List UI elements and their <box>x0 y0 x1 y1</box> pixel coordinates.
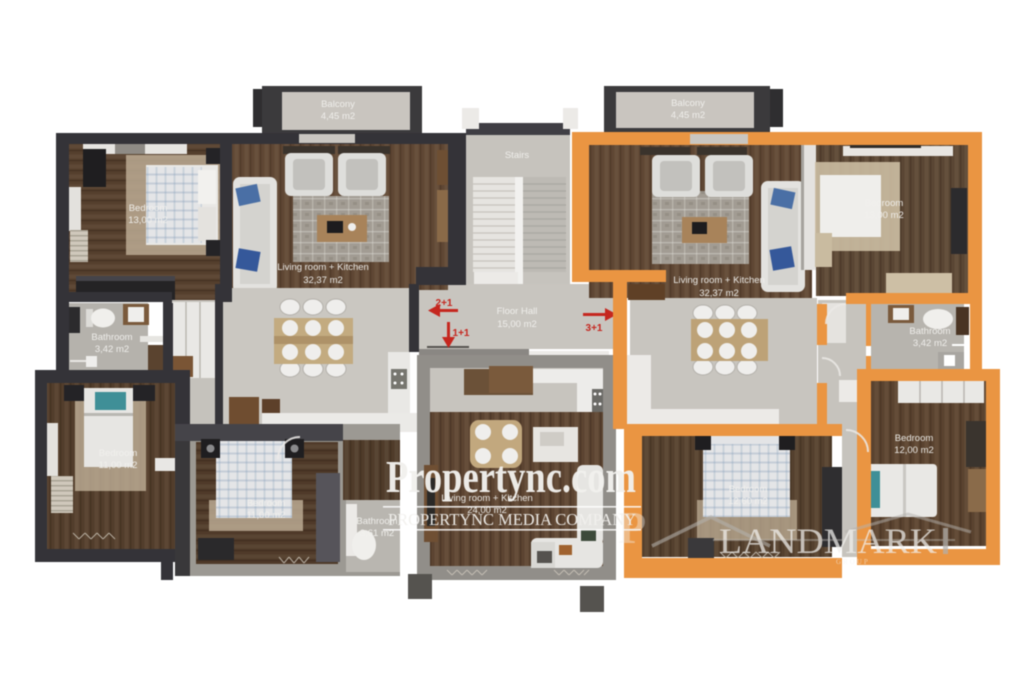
svg-text:Bedroom: Bedroom <box>895 433 934 444</box>
svg-text:11,00 m2: 11,00 m2 <box>99 460 138 471</box>
svg-text:1+1: 1+1 <box>453 328 470 339</box>
svg-text:PROPERTYNC MEDIA COMPANY: PROPERTYNC MEDIA COMPANY <box>388 510 636 529</box>
svg-text:3+1: 3+1 <box>586 323 603 334</box>
svg-text:3,42 m2: 3,42 m2 <box>95 344 129 355</box>
svg-text:Living room + Kitchen: Living room + Kitchen <box>673 275 765 286</box>
svg-text:Floor Hall: Floor Hall <box>497 306 538 317</box>
svg-text:Bathroom: Bathroom <box>91 332 132 343</box>
svg-text:GROUP: GROUP <box>836 558 870 566</box>
svg-text:Living room + Kitchen: Living room + Kitchen <box>277 262 369 273</box>
svg-text:Bedroom: Bedroom <box>865 198 904 209</box>
svg-text:4,45 m2: 4,45 m2 <box>671 110 705 121</box>
svg-text:Bathroom: Bathroom <box>909 326 950 337</box>
svg-text:Propertync.com: Propertync.com <box>386 452 636 502</box>
svg-text:13,00 m2: 13,00 m2 <box>128 215 168 226</box>
svg-text:Stairs: Stairs <box>505 150 530 161</box>
svg-text:Balcony: Balcony <box>671 98 705 109</box>
svg-text:3,42 m2: 3,42 m2 <box>913 338 947 349</box>
svg-text:32,37 m2: 32,37 m2 <box>303 275 343 286</box>
svg-text:15,00 m2: 15,00 m2 <box>497 319 537 330</box>
svg-text:12,60 m2: 12,60 m2 <box>728 496 768 507</box>
svg-text:P: P <box>618 502 646 553</box>
svg-text:Bedroom: Bedroom <box>99 448 138 459</box>
svg-text:32,37 m2: 32,37 m2 <box>699 288 739 299</box>
svg-text:13,00 m2: 13,00 m2 <box>864 210 904 221</box>
svg-text:12,00 m2: 12,00 m2 <box>894 445 934 456</box>
svg-text:Bedroom: Bedroom <box>247 498 286 509</box>
svg-text:Bedroom: Bedroom <box>729 484 768 495</box>
svg-text:4,45 m2: 4,45 m2 <box>321 111 355 122</box>
svg-text:Bedroom: Bedroom <box>129 203 168 214</box>
svg-text:LANDMARK: LANDMARK <box>719 521 937 561</box>
svg-text:2+1: 2+1 <box>436 298 453 309</box>
svg-text:Balcony: Balcony <box>321 99 355 110</box>
svg-text:11,00 m2: 11,00 m2 <box>247 510 286 521</box>
